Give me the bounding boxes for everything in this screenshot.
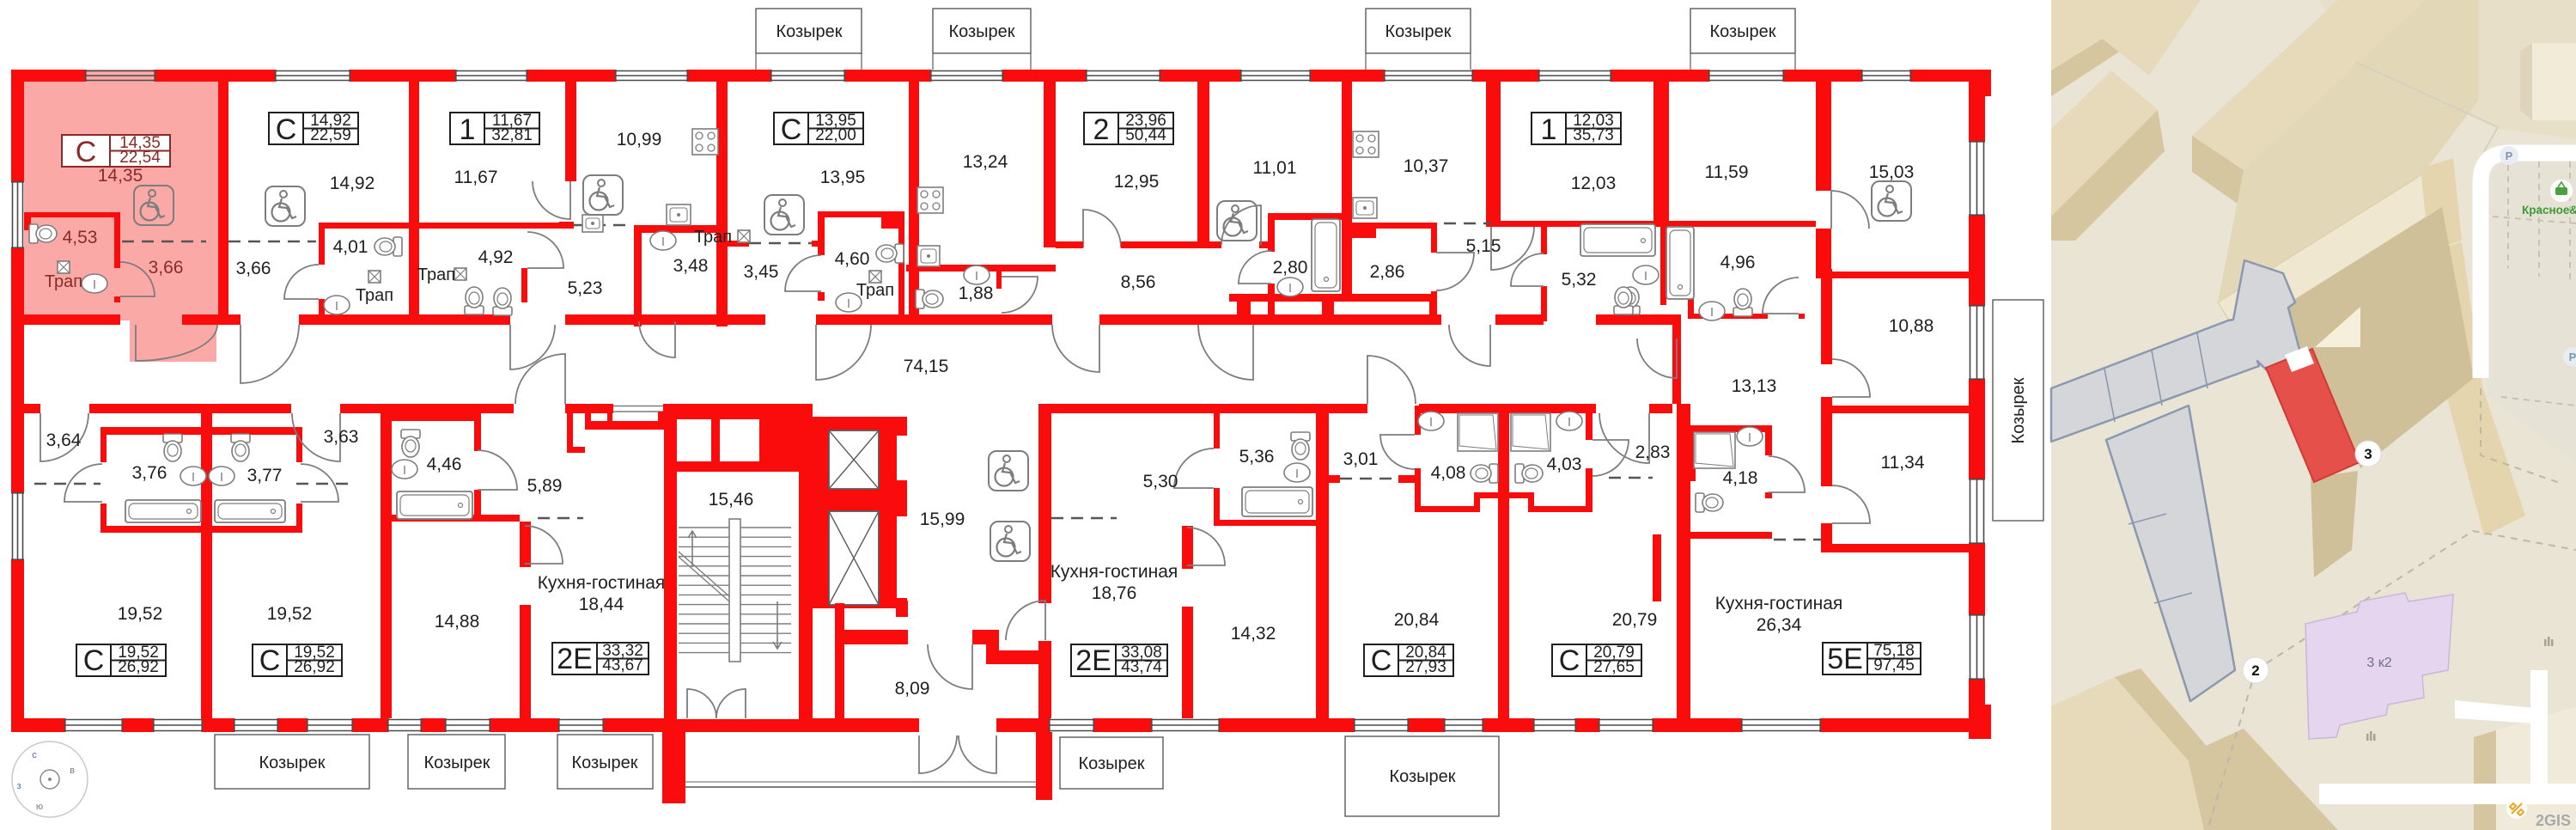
svg-text:P: P bbox=[2506, 150, 2513, 162]
svg-text:4,60: 4,60 bbox=[835, 249, 870, 269]
svg-text:20,84: 20,84 bbox=[1394, 610, 1440, 630]
svg-text:с: с bbox=[32, 750, 37, 760]
svg-text:4,01: 4,01 bbox=[333, 237, 368, 257]
svg-text:5,15: 5,15 bbox=[1466, 236, 1501, 256]
svg-text:Козырек: Козырек bbox=[1709, 22, 1775, 41]
svg-text:43,67: 43,67 bbox=[602, 656, 643, 674]
svg-text:5,89: 5,89 bbox=[527, 476, 563, 496]
svg-text:50,44: 50,44 bbox=[1125, 126, 1166, 144]
svg-text:Козырек: Козырек bbox=[571, 754, 637, 772]
svg-text:Козырек: Козырек bbox=[776, 22, 842, 41]
svg-text:С: С bbox=[781, 113, 802, 146]
svg-text:5,30: 5,30 bbox=[1143, 472, 1178, 491]
svg-text:С: С bbox=[83, 644, 105, 677]
svg-text:3,01: 3,01 bbox=[1343, 449, 1379, 469]
svg-text:3,77: 3,77 bbox=[247, 466, 283, 485]
svg-text:2,80: 2,80 bbox=[1273, 258, 1308, 278]
svg-text:26,92: 26,92 bbox=[294, 658, 335, 676]
svg-text:2,83: 2,83 bbox=[1635, 442, 1671, 462]
svg-text:32,81: 32,81 bbox=[491, 126, 533, 144]
svg-text:26,34: 26,34 bbox=[1757, 615, 1802, 635]
svg-text:Трап: Трап bbox=[694, 228, 732, 247]
svg-text:Трап: Трап bbox=[417, 265, 455, 284]
svg-text:11,59: 11,59 bbox=[1705, 162, 1749, 182]
svg-text:15,99: 15,99 bbox=[920, 510, 965, 529]
svg-text:3,48: 3,48 bbox=[673, 256, 709, 276]
svg-text:5,23: 5,23 bbox=[568, 278, 603, 298]
svg-text:С: С bbox=[1371, 644, 1392, 677]
svg-text:5,36: 5,36 bbox=[1239, 447, 1275, 467]
svg-text:19,52: 19,52 bbox=[267, 604, 313, 624]
svg-text:4,18: 4,18 bbox=[1723, 468, 1758, 488]
svg-text:18,44: 18,44 bbox=[579, 595, 624, 614]
svg-text:4,46: 4,46 bbox=[427, 455, 462, 474]
svg-text:3,76: 3,76 bbox=[132, 463, 167, 483]
svg-text:2GIS: 2GIS bbox=[2536, 812, 2571, 829]
svg-text:74,15: 74,15 bbox=[904, 357, 949, 376]
svg-text:3,64: 3,64 bbox=[46, 430, 82, 450]
svg-text:20,79: 20,79 bbox=[1612, 610, 1658, 630]
svg-text:Козырек: Козырек bbox=[948, 22, 1014, 41]
svg-text:3,66: 3,66 bbox=[236, 259, 271, 278]
svg-text:С: С bbox=[259, 644, 281, 677]
svg-text:Козырек: Козырек bbox=[1385, 22, 1451, 41]
svg-text:С: С bbox=[1559, 644, 1580, 677]
svg-text:4,92: 4,92 bbox=[478, 247, 514, 267]
svg-text:Кухня-гостиная: Кухня-гостиная bbox=[1715, 594, 1843, 613]
svg-text:1: 1 bbox=[1541, 113, 1557, 146]
svg-text:13,24: 13,24 bbox=[963, 152, 1008, 172]
svg-text:13,95: 13,95 bbox=[820, 168, 866, 187]
svg-text:10,99: 10,99 bbox=[617, 130, 662, 150]
svg-text:Козырек: Козырек bbox=[1389, 767, 1455, 786]
svg-text:14,92: 14,92 bbox=[330, 174, 375, 193]
svg-text:14,35: 14,35 bbox=[98, 166, 143, 186]
svg-text:35,73: 35,73 bbox=[1573, 126, 1614, 144]
svg-text:15,03: 15,03 bbox=[1869, 162, 1915, 182]
svg-text:P: P bbox=[2569, 351, 2576, 363]
svg-text:3,66: 3,66 bbox=[149, 258, 184, 278]
svg-text:2: 2 bbox=[1093, 113, 1110, 146]
svg-text:5Е: 5Е bbox=[1827, 643, 1863, 675]
svg-text:3,45: 3,45 bbox=[744, 262, 779, 282]
svg-text:3: 3 bbox=[2364, 446, 2372, 462]
svg-text:12,03: 12,03 bbox=[1571, 174, 1617, 193]
svg-text:Козырек: Козырек bbox=[2009, 377, 2028, 443]
svg-text:Козырек: Козырек bbox=[259, 754, 325, 772]
svg-text:26,92: 26,92 bbox=[118, 658, 159, 676]
svg-text:2,86: 2,86 bbox=[1370, 262, 1405, 282]
svg-text:Трап: Трап bbox=[856, 281, 894, 300]
svg-text:С: С bbox=[276, 113, 297, 146]
svg-text:1,88: 1,88 bbox=[959, 284, 994, 303]
svg-text:10,88: 10,88 bbox=[1889, 316, 1934, 336]
svg-text:22,54: 22,54 bbox=[119, 149, 161, 167]
svg-text:13,13: 13,13 bbox=[1732, 376, 1777, 396]
svg-text:Козырек: Козырек bbox=[423, 754, 490, 772]
svg-text:4,08: 4,08 bbox=[1431, 463, 1466, 483]
svg-text:в: в bbox=[70, 766, 75, 776]
svg-text:С: С bbox=[76, 136, 97, 168]
svg-text:11,34: 11,34 bbox=[1881, 453, 1925, 473]
svg-text:19,52: 19,52 bbox=[118, 604, 163, 624]
svg-text:5,32: 5,32 bbox=[1562, 270, 1597, 290]
svg-text:14,88: 14,88 bbox=[435, 612, 480, 632]
svg-text:4,53: 4,53 bbox=[63, 228, 98, 247]
svg-text:11,01: 11,01 bbox=[1253, 158, 1297, 178]
svg-text:10,37: 10,37 bbox=[1404, 156, 1449, 176]
svg-text:Трап: Трап bbox=[45, 272, 82, 291]
svg-text:ю: ю bbox=[36, 802, 43, 812]
svg-text:4,03: 4,03 bbox=[1547, 455, 1582, 474]
svg-text:2Е: 2Е bbox=[557, 643, 593, 675]
svg-text:1: 1 bbox=[460, 113, 476, 146]
svg-text:27,93: 27,93 bbox=[1405, 658, 1446, 676]
svg-text:8,09: 8,09 bbox=[895, 679, 930, 699]
svg-text:4,96: 4,96 bbox=[1720, 253, 1756, 272]
svg-text:з: з bbox=[16, 781, 21, 791]
svg-text:Кухня-гостиная: Кухня-гостиная bbox=[1050, 562, 1178, 582]
svg-text:8,56: 8,56 bbox=[1121, 272, 1156, 292]
svg-text:18,76: 18,76 bbox=[1092, 583, 1137, 603]
svg-text:97,45: 97,45 bbox=[1873, 656, 1915, 674]
svg-text:22,59: 22,59 bbox=[310, 126, 351, 144]
svg-text:Кухня-гостиная: Кухня-гостиная bbox=[538, 573, 666, 593]
svg-text:2: 2 bbox=[2251, 662, 2259, 679]
svg-text:14,32: 14,32 bbox=[1231, 624, 1276, 644]
svg-text:Красное&Б: Красное&Б bbox=[2522, 204, 2576, 217]
svg-text:3,63: 3,63 bbox=[324, 427, 359, 447]
svg-text:12,95: 12,95 bbox=[1114, 172, 1160, 192]
svg-text:Трап: Трап bbox=[356, 286, 393, 305]
svg-text:27,65: 27,65 bbox=[1593, 658, 1635, 676]
svg-text:15,46: 15,46 bbox=[709, 490, 754, 510]
svg-text:22,00: 22,00 bbox=[815, 126, 856, 144]
svg-text:11,67: 11,67 bbox=[454, 168, 498, 187]
svg-text:Козырек: Козырек bbox=[1078, 754, 1144, 773]
svg-text:2Е: 2Е bbox=[1075, 644, 1111, 677]
svg-text:43,74: 43,74 bbox=[1121, 658, 1162, 676]
svg-text:3 к2: 3 к2 bbox=[2366, 656, 2391, 670]
